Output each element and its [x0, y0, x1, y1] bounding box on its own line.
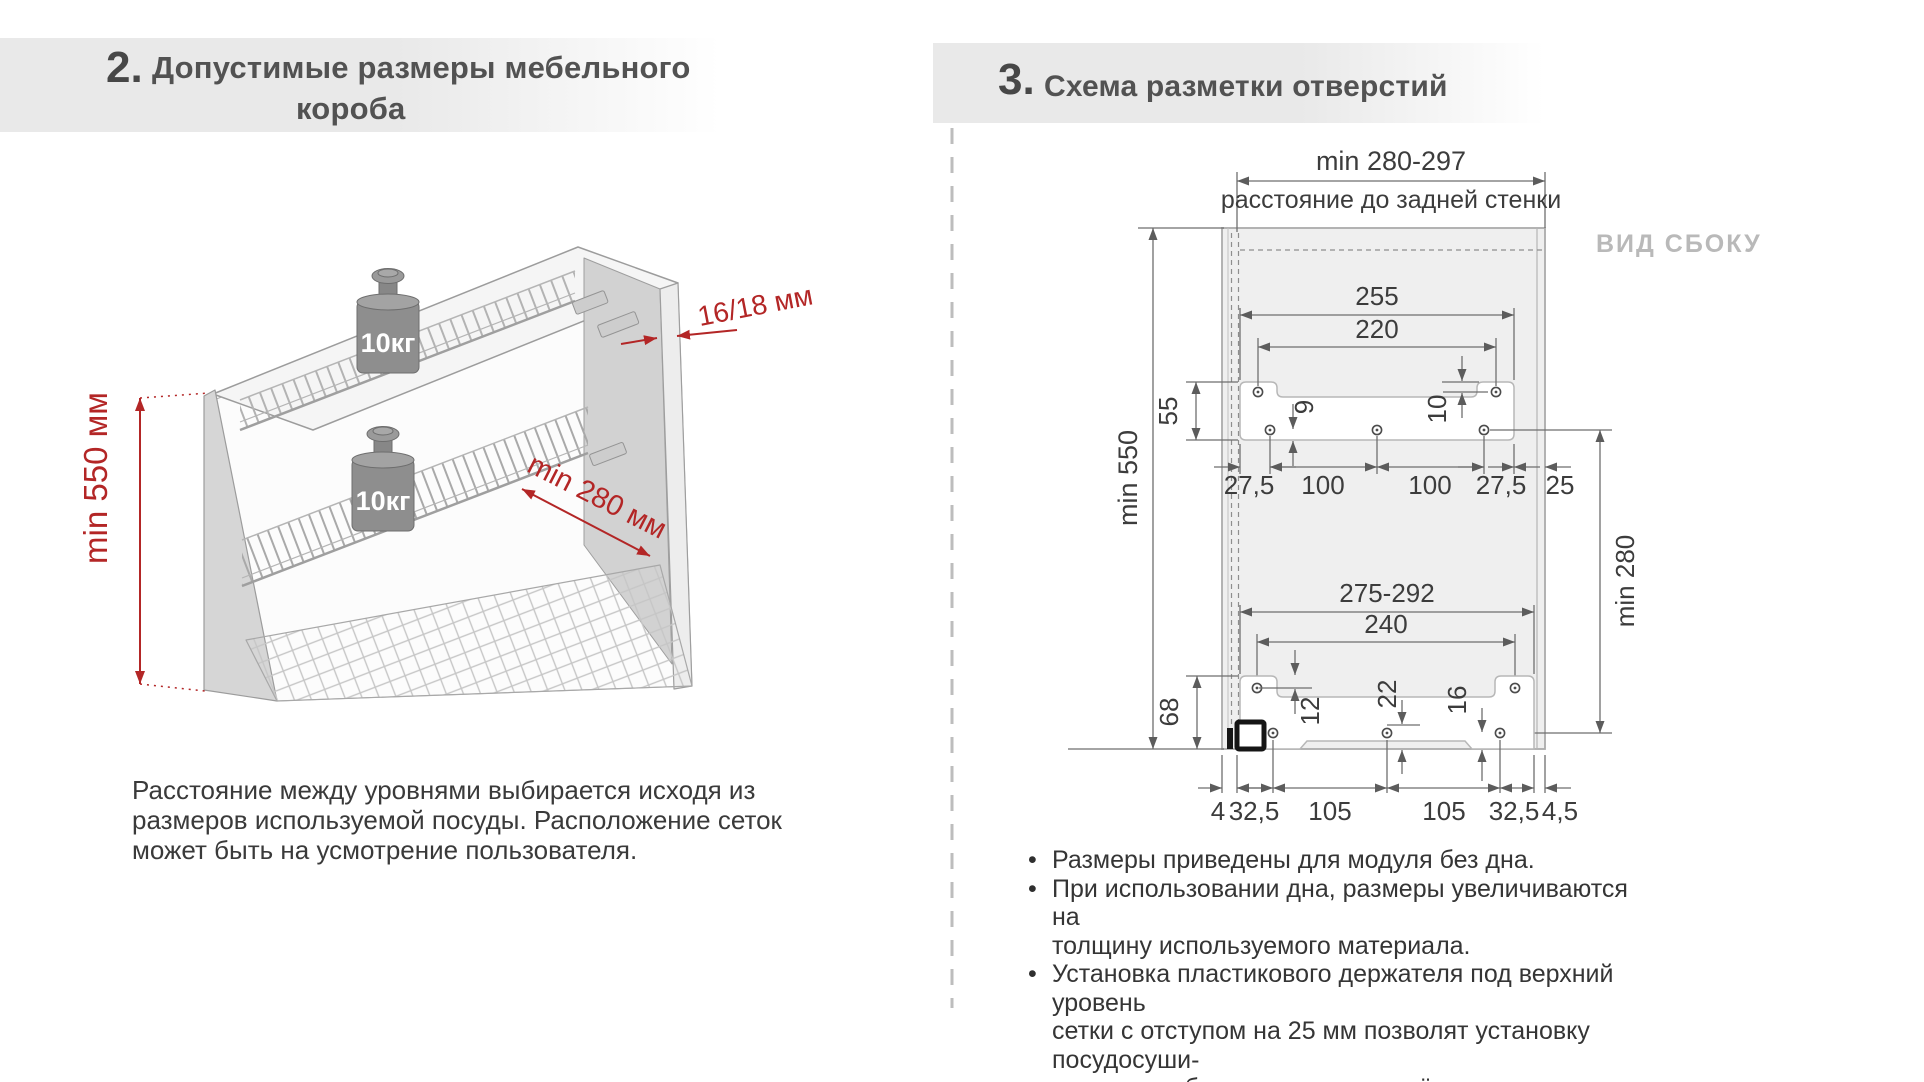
- cabinet-note-line2: размеров используемой посуды. Расположен…: [132, 805, 812, 835]
- dim-16-label: 16: [1442, 686, 1472, 715]
- dim-220-label: 220: [1355, 314, 1398, 344]
- dim-100-right: 100: [1408, 470, 1451, 500]
- dim-32-5-left: 32,5: [1229, 796, 1280, 826]
- bullet-icon: •: [1028, 846, 1052, 875]
- dim-min-height-label: min 550: [1113, 430, 1143, 526]
- weight-upper: 10кг: [357, 269, 419, 374]
- hole-scheme: ВИД СБОКУ min 280-297 расстояние до задн…: [1068, 146, 1762, 826]
- bullet-2-line2: толщину используемого материала.: [1052, 932, 1628, 961]
- dim-32-5-right: 32,5: [1489, 796, 1540, 826]
- dim-105-right: 105: [1422, 796, 1465, 826]
- bullet-icon: •: [1028, 875, 1052, 904]
- bullet-3-line3: теля в короб со складным подъёмным механ…: [1052, 1074, 1628, 1082]
- bullet-icon: •: [1028, 960, 1052, 989]
- technical-drawing: 10кг 10кг min 550 мм 16/18 мм: [0, 0, 1924, 1082]
- weight-lower-label: 10кг: [356, 486, 411, 516]
- bullet-1-line1: Размеры приведены для модуля без дна.: [1052, 846, 1535, 875]
- dim-12-label: 12: [1295, 697, 1325, 726]
- dim-240-label: 240: [1364, 609, 1407, 639]
- dim-4: 4: [1211, 796, 1225, 826]
- dim-22-label: 22: [1372, 680, 1402, 709]
- dim-27-5-right: 27,5: [1476, 470, 1527, 500]
- bullet-2-line1: При использовании дна, размеры увеличива…: [1052, 875, 1628, 932]
- list-item: • При использовании дна, размеры увеличи…: [1028, 875, 1628, 961]
- dim-4-5: 4,5: [1542, 796, 1578, 826]
- bullet-3-line2: сетки с отступом на 25 мм позволят устан…: [1052, 1017, 1628, 1074]
- dim-68-label: 68: [1154, 698, 1184, 727]
- notes-list: • Размеры приведены для модуля без дна. …: [1028, 846, 1628, 1082]
- instruction-page: 2. Допустимые размеры мебельного короба …: [0, 0, 1924, 1082]
- dim-275-292-label: 275-292: [1339, 578, 1434, 608]
- view-side-label: ВИД СБОКУ: [1596, 230, 1762, 258]
- dim-back-distance-caption: расстояние до задней стенки: [1221, 186, 1561, 214]
- cabinet-note-line3: может быть на усмотрение пользователя.: [132, 835, 812, 865]
- dim-55-label: 55: [1153, 397, 1183, 426]
- dim-back-distance-label: min 280-297: [1316, 146, 1466, 176]
- cabinet-thickness-dim: 16/18 мм: [695, 279, 815, 332]
- list-item: • Размеры приведены для модуля без дна.: [1028, 846, 1628, 875]
- dim-10-label: 10: [1422, 395, 1452, 424]
- dim-27-5-left: 27,5: [1224, 470, 1275, 500]
- cabinet-note: Расстояние между уровнями выбирается исх…: [132, 775, 812, 865]
- cabinet-note-line1: Расстояние между уровнями выбирается исх…: [132, 775, 812, 805]
- cabinet-height-dim: min 550 мм: [77, 392, 114, 564]
- dim-25: 25: [1546, 470, 1575, 500]
- list-item: • Установка пластикового держателя под в…: [1028, 960, 1628, 1082]
- dim-min-levels-label: min 280: [1610, 535, 1640, 628]
- dim-100-left: 100: [1301, 470, 1344, 500]
- dim-min-height: [1068, 228, 1224, 749]
- cabinet-drawing: 10кг 10кг min 550 мм 16/18 мм: [77, 247, 815, 701]
- dim-9-label: 9: [1289, 400, 1319, 414]
- bullet-3-line1: Установка пластикового держателя под вер…: [1052, 960, 1628, 1017]
- weight-upper-label: 10кг: [361, 328, 416, 358]
- dim-255-label: 255: [1355, 281, 1398, 311]
- dim-105-left: 105: [1308, 796, 1351, 826]
